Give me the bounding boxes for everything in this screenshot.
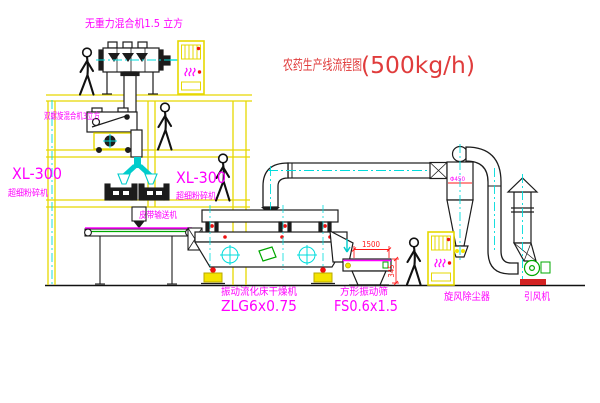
belt-conveyor (85, 228, 193, 284)
label-mill-left-name: 超细粉碎机 (8, 187, 48, 199)
dryer-feet (201, 267, 335, 283)
cyclone-outlet-duct (466, 147, 518, 274)
dim-cyclone-dia: Φ450 (450, 175, 465, 183)
pulverizer-left (105, 174, 137, 200)
label-mill-center-model: XL-300 (176, 168, 226, 187)
label-dryer-model: ZLG6x0.75 (221, 297, 297, 315)
diagram-title-capacity: (500kg/h) (361, 53, 475, 79)
induced-draft-fan (520, 261, 550, 286)
square-sifter (343, 259, 391, 285)
label-top-mixer: 无重力混合机1.5 立方 (85, 16, 183, 30)
process-flow-diagram: 无重力混合机1.5 立方 农药生产线流程图 (500kg/h) 双螺旋混合机3立… (0, 0, 600, 403)
drawing-canvas: 无重力混合机1.5 立方 农药生产线流程图 (500kg/h) 双螺旋混合机3立… (0, 0, 600, 403)
hood-stubs (206, 222, 331, 231)
control-cabinet-right (428, 232, 454, 285)
label-mill-center-name: 超细粉碎机 (176, 190, 216, 202)
person-figure-top (80, 48, 94, 94)
dim-sifter-height: 345 (387, 264, 396, 277)
label-belt-conveyor: 皮带输送机 (139, 209, 177, 221)
label-fan: 引风机 (524, 290, 550, 303)
control-cabinet-top (178, 41, 204, 94)
label-screw-mixer: 双螺旋混合机3立方 (44, 110, 100, 122)
dim-sifter-width: 1500 (362, 240, 380, 249)
y-chute (124, 157, 151, 176)
label-sifter-model: FS0.6x1.5 (334, 297, 398, 315)
label-mill-left-model: XL-300 (12, 164, 62, 183)
pulverizer-right (139, 174, 169, 200)
main-exhaust-duct (261, 163, 446, 216)
diagram-title: 农药生产线流程图 (283, 58, 362, 74)
label-cyclone: 旋风除尘器 (444, 290, 490, 303)
person-figure-floor2 (158, 103, 172, 149)
person-figure-ground (407, 238, 421, 284)
fluid-bed-dryer (195, 205, 347, 284)
